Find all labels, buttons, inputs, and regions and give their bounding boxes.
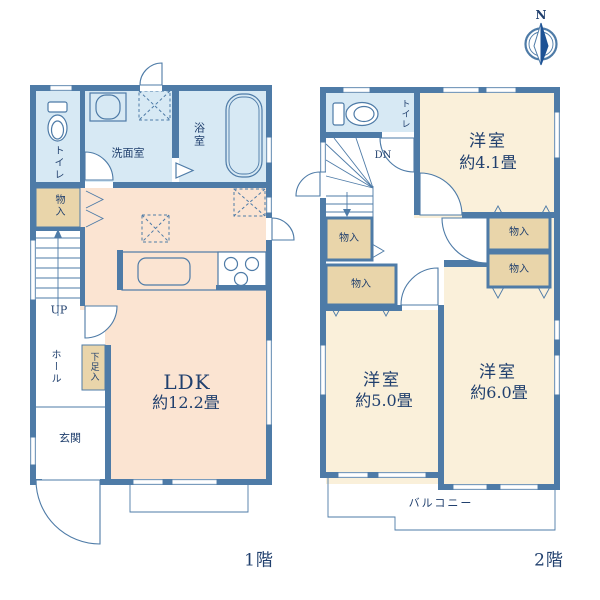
bedroom-a-name-label: 洋室 (469, 134, 507, 151)
stairs-up-label: UP (51, 305, 68, 316)
floor1-caption: 1階 (244, 553, 274, 570)
storage-ne-upper-label: 物入 (509, 228, 529, 238)
bathroom-label: 浴室 (194, 122, 205, 148)
compass-icon (526, 23, 557, 65)
ldk-size-label: 約12.2畳 (152, 395, 220, 411)
storage-nw-label: 物入 (339, 234, 359, 244)
bedroom-c-size-label: 約6.0畳 (470, 385, 527, 401)
hall-label: ホール (49, 349, 59, 385)
floor2-plan (296, 87, 560, 530)
bedroom-c-name-label: 洋室 (479, 365, 517, 382)
floor2-caption: 2階 (534, 553, 564, 570)
floorplan-drawing (0, 0, 600, 600)
door-arc (296, 172, 320, 196)
ldk-name-label: LDK (163, 372, 210, 392)
toilet-icon-floor1 (48, 102, 67, 141)
bedroom-a-size-label: 約4.1畳 (459, 155, 516, 171)
floorplan-image: トイレ 洗面室 浴室 物入 UP ホール 下足入 玄関 LDK 約12.2畳 1… (0, 0, 600, 600)
balcony-label: バルコニー (409, 498, 474, 509)
compass-north-label: N (536, 9, 547, 21)
washroom-label: 洗面室 (112, 148, 145, 159)
terrace-outline (130, 485, 248, 512)
storage-sw-label: 物入 (351, 280, 371, 290)
bedroom-b-size-label: 約5.0畳 (355, 393, 412, 409)
toilet2-label: トイレ (400, 99, 409, 129)
bedroom-b-name-label: 洋室 (363, 373, 401, 390)
toilet-icon-floor2 (333, 103, 378, 126)
entrance-label: 玄関 (59, 433, 81, 444)
storage1-label: 物入 (53, 194, 63, 218)
storage-ne-lower-label: 物入 (509, 265, 529, 275)
floor1-plan (30, 63, 294, 544)
door-arc (272, 218, 294, 240)
stairs-down-label: DN (375, 151, 392, 161)
shoe-storage-label: 下足入 (89, 352, 98, 382)
entrance-door-arc (36, 480, 100, 544)
toilet1-label: トイレ (52, 145, 62, 181)
door-arc (140, 63, 162, 85)
stove-icon (218, 252, 266, 287)
